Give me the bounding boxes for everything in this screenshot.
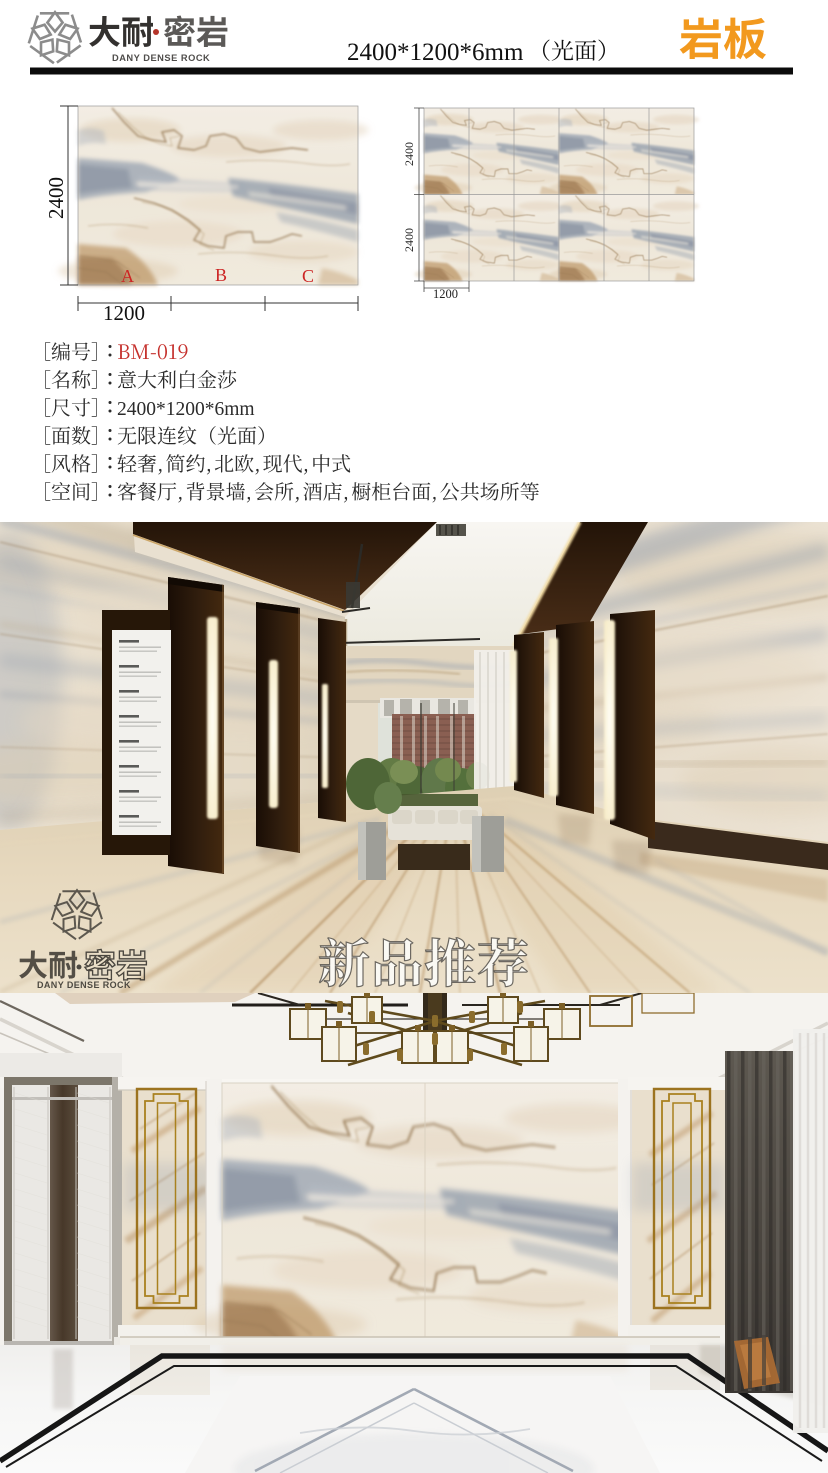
- svg-text:2400: 2400: [44, 177, 68, 219]
- svg-text:DANY DENSE ROCK: DANY DENSE ROCK: [112, 53, 210, 63]
- svg-text:B: B: [215, 265, 227, 285]
- svg-text:2400: 2400: [402, 228, 416, 252]
- svg-text:1200: 1200: [433, 287, 458, 301]
- svg-text:1200: 1200: [103, 301, 145, 325]
- svg-text:DANY DENSE ROCK: DANY DENSE ROCK: [37, 980, 131, 990]
- svg-text:2400*1200*6mm: 2400*1200*6mm: [117, 399, 255, 420]
- svg-text:2400*1200*6mm: 2400*1200*6mm: [347, 39, 524, 66]
- svg-text:2400: 2400: [402, 142, 416, 166]
- svg-text:A: A: [121, 266, 134, 286]
- svg-text:C: C: [302, 266, 314, 286]
